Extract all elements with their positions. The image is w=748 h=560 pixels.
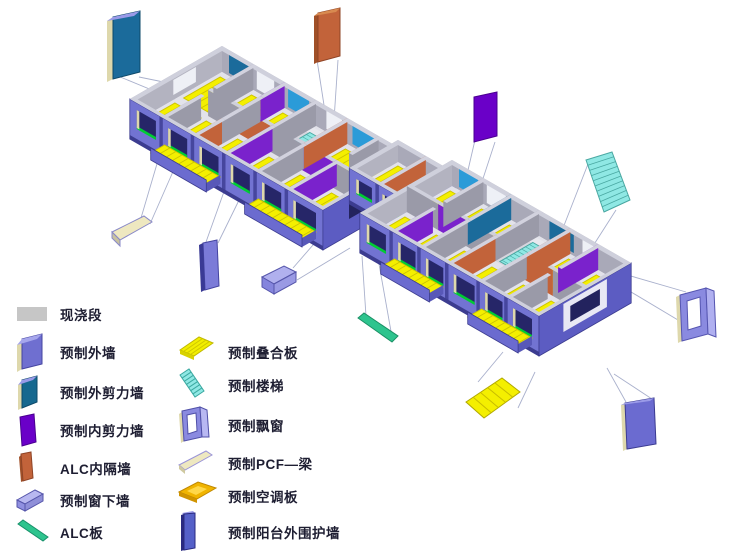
callout-window-sill-wall [262, 266, 296, 294]
callout-pcf-beam [112, 216, 152, 246]
callout-interior-shear-wall [474, 92, 497, 142]
building-exploded-view [0, 0, 748, 560]
callout-stairs [586, 152, 630, 212]
callout-alc-partition-wall [314, 8, 340, 64]
callout-exterior-shear-wall [107, 11, 140, 82]
callout-balcony-enclosure-wall [199, 240, 219, 292]
callout-composite-slab [466, 378, 520, 418]
diagram-canvas: 现浇段 预制外墙 预制外剪力墙 [0, 0, 748, 560]
callout-exterior-wall [621, 398, 656, 451]
callout-alc-board [358, 313, 398, 342]
callout-bay-window [676, 288, 716, 343]
building-model [130, 46, 631, 356]
